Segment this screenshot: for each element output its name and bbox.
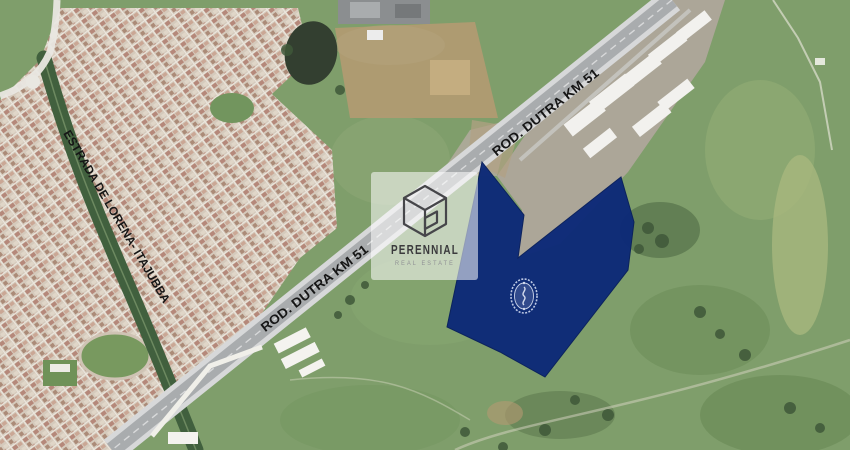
satellite-map-image: ROD. DUTRA KM 51 ROD. DUTRA KM 51 ESTRAD… (0, 0, 850, 450)
map-canvas: ROD. DUTRA KM 51 ROD. DUTRA KM 51 ESTRAD… (0, 0, 850, 450)
watermark: PERENNIAL REAL ESTATE (371, 172, 478, 280)
sports-field (43, 360, 77, 386)
stadium-oval (80, 333, 150, 379)
watermark-brand-name: PERENNIAL (391, 243, 459, 257)
park-oval (210, 93, 254, 123)
watermark-brand-tagline: REAL ESTATE (395, 260, 455, 267)
